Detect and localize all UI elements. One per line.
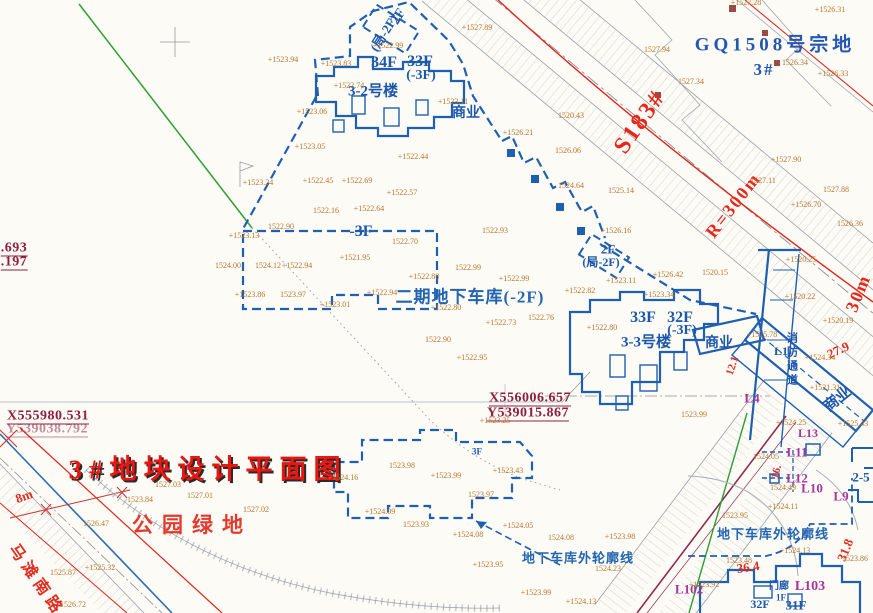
annotation-label: X556006.657	[489, 392, 571, 407]
elevation-label: 1527.01	[187, 492, 213, 500]
elevation-label: +1522.95	[457, 354, 488, 362]
annotation-label: 地下车库外轮廓线	[522, 552, 634, 565]
elevation-label: 1523.86	[842, 555, 868, 563]
elevation-label: 1526.36	[837, 220, 863, 228]
parcel-number: 3#	[754, 60, 775, 80]
annotation-label: L1	[774, 345, 788, 357]
elevation-label: 1523.95	[722, 512, 748, 520]
elevation-label: 1522.93	[482, 227, 508, 235]
annotation-label: 商业	[452, 107, 480, 121]
annotation-label: (-3F)	[406, 69, 436, 83]
elevation-label: +1526.33	[818, 70, 849, 78]
elevation-label: +1524.13	[566, 598, 597, 606]
annotation-label: .197	[1, 256, 28, 271]
elevation-label: +1525.43	[838, 420, 869, 428]
elevation-label: +1523.86	[235, 291, 266, 299]
elevation-label: +1522.45	[303, 177, 334, 185]
elevation-label: +1523.43	[493, 467, 524, 475]
annotation-label: 3-3号楼	[621, 336, 671, 351]
elevation-label: +1527.89	[462, 24, 493, 32]
elevation-label: +1523.95	[473, 561, 504, 569]
elevation-label: +1526.31	[815, 6, 846, 14]
elevation-label: +1523.24	[243, 179, 274, 187]
elevation-label: +1523.98	[605, 533, 636, 541]
elevation-label: +1523.83	[321, 60, 352, 68]
elevation-label: +1520.22	[785, 293, 816, 301]
annotation-label: 商业	[705, 337, 733, 351]
elevation-label: 1522.70	[392, 238, 418, 246]
elevation-label: 1524.05	[753, 453, 779, 461]
elevation-label: 1525.14	[608, 187, 634, 195]
elevation-label: 1527.03	[155, 481, 181, 489]
elevation-label: +1524.09	[365, 508, 396, 516]
parcel-name: GQ1508号宗地	[695, 30, 856, 57]
elevation-label: 1522.90	[425, 336, 451, 344]
elevation-label: +1523.94	[268, 56, 299, 64]
site-plan-canvas: 3#地块设计平面图 公园绿地 GQ1508号宗地 3# 2F(局-2F)34F3…	[0, 0, 873, 613]
elevation-label: +1524.25	[776, 419, 807, 427]
elevation-label: +1526.16	[601, 227, 632, 235]
elevation-label: +1520.25	[786, 256, 817, 264]
elevation-label: +1523.99	[521, 589, 552, 597]
elevation-label: 1522.99	[455, 264, 481, 272]
elevation-label: +1522.94	[367, 289, 398, 297]
elevation-label: 1524.08	[548, 534, 574, 542]
elevation-label: 1523.93	[403, 521, 429, 529]
elevation-label: +1522.69	[342, 177, 373, 185]
elevation-label: +1526.21	[503, 129, 534, 137]
annotation-label: 3F	[472, 448, 482, 457]
elevation-label: +1526.70	[791, 201, 822, 209]
elevation-label: +1523.99	[431, 472, 462, 480]
annotation-label: 二期地下车库(-2F)	[396, 289, 545, 306]
annotation-label: L9	[833, 490, 848, 503]
annotation-label: 34F	[371, 55, 397, 71]
annotation-label: L10	[801, 482, 823, 495]
annotation-label: 31F	[786, 599, 807, 612]
annotation-label: L11	[787, 446, 808, 459]
elevation-label: +1523.11	[438, 98, 468, 106]
elevation-label: 1523.48	[726, 557, 752, 565]
elevation-label: +1524.13	[780, 547, 811, 555]
elevation-label: +1523.25	[480, 417, 511, 425]
elevation-label: +1527.28	[731, 0, 762, 7]
elevation-label: +1522.80	[431, 304, 462, 312]
elevation-label: +1523.11	[606, 277, 636, 285]
elevation-label: +1523.05	[295, 143, 326, 151]
elevation-label: 1520.43	[558, 112, 584, 120]
annotation-label: 1F	[776, 594, 786, 603]
park-green-label: 公园绿地	[132, 509, 252, 539]
elevation-label: 1526.34	[782, 59, 808, 67]
annotation-label: 33F	[630, 310, 656, 326]
elevation-label: +1522.73	[486, 319, 517, 327]
elevation-label: +1524.05	[503, 522, 534, 530]
elevation-label: +1522.44	[398, 153, 429, 161]
elevation-label: 1523.99	[681, 411, 707, 419]
annotation-label: (-3F)	[667, 324, 697, 338]
elevation-label: 1526.06	[555, 147, 581, 155]
elevation-label: +1521.95	[340, 254, 371, 262]
elevation-label: +1522.57	[387, 189, 418, 197]
annotation-label: 门廊	[769, 582, 789, 592]
elevation-label: +1522.82	[565, 287, 596, 295]
elevation-label: 1523.97	[280, 291, 306, 299]
annotation-label: L103	[795, 580, 825, 594]
elevation-label: 1527.34	[678, 78, 704, 86]
annotation-label: 地下车库外轮廓线	[717, 528, 829, 541]
elevation-label: +1525.32	[85, 564, 116, 572]
annotation-label: 2-5	[852, 471, 869, 484]
annotation-label: L4	[744, 392, 759, 405]
elevation-label: +1523.01	[320, 301, 351, 309]
annotation-label: 32F	[750, 598, 769, 610]
elevation-label: 1526.47	[83, 520, 109, 528]
elevation-label: 1527.11	[750, 177, 776, 185]
elevation-label: 1524.49	[770, 484, 796, 492]
elevation-label: 1525.87	[50, 569, 76, 577]
elevation-label: 1522.76	[528, 314, 554, 322]
elevation-label: +1521.31	[810, 384, 841, 392]
elevation-label: +1523.34	[644, 291, 675, 299]
elevation-label: 1522.16	[313, 207, 339, 215]
elevation-label: +1527.90	[771, 156, 802, 164]
elevation-label: 1527.88	[823, 186, 849, 194]
elevation-label: +1525.78	[747, 331, 778, 339]
elevation-label: +1522.64	[354, 205, 385, 213]
elevation-label: +1523.92	[689, 581, 720, 589]
elevation-label: 1524.64	[558, 182, 584, 190]
elevation-label: +1523.06	[297, 108, 328, 116]
elevation-label: +1520.19	[823, 317, 854, 325]
elevation-label: 1523.97	[468, 491, 494, 499]
elevation-label: 1524.23	[595, 565, 621, 573]
elevation-label: 1523.98	[389, 462, 415, 470]
elevation-label: 1527.02	[243, 506, 269, 514]
elevation-label: 1524.12	[255, 262, 281, 270]
elevation-label: +1523.13	[229, 232, 260, 240]
elevation-label: +1524.08	[453, 531, 484, 539]
elevation-label: 1520.15	[702, 269, 728, 277]
elevation-label: 1523.84	[127, 496, 153, 504]
elevation-label: 1526.72	[60, 601, 86, 609]
annotation-label: 消防通道	[786, 332, 797, 388]
elevation-label: +1522.80	[587, 324, 618, 332]
elevation-label: +1522.94	[282, 262, 313, 270]
boundary-green-line	[79, 4, 252, 228]
elevation-label: +1522.74	[334, 82, 365, 90]
elevation-label: +1522.88	[409, 273, 440, 281]
annotation-label: Y539038.792	[6, 423, 88, 438]
annotation-label: -3F	[349, 224, 372, 240]
elevation-label: +1524.16	[328, 474, 359, 482]
elevation-label: +1524.34	[805, 354, 836, 362]
elevation-label: +1524.11	[768, 503, 798, 511]
elevation-label: +1522.99	[499, 275, 530, 283]
annotation-label: L13	[798, 427, 818, 439]
elevation-label: 1522.90	[268, 223, 294, 231]
elevation-label: +1522.99	[373, 42, 404, 50]
elevation-label: 1527.94	[644, 46, 670, 54]
annotation-label: (局-2F)	[582, 256, 619, 268]
elevation-label: +1526.42	[653, 271, 684, 279]
elevation-label: 1524.00	[215, 262, 241, 270]
plan-title: 3#地块设计平面图	[69, 448, 348, 487]
annotation-label: 2F	[601, 243, 615, 256]
